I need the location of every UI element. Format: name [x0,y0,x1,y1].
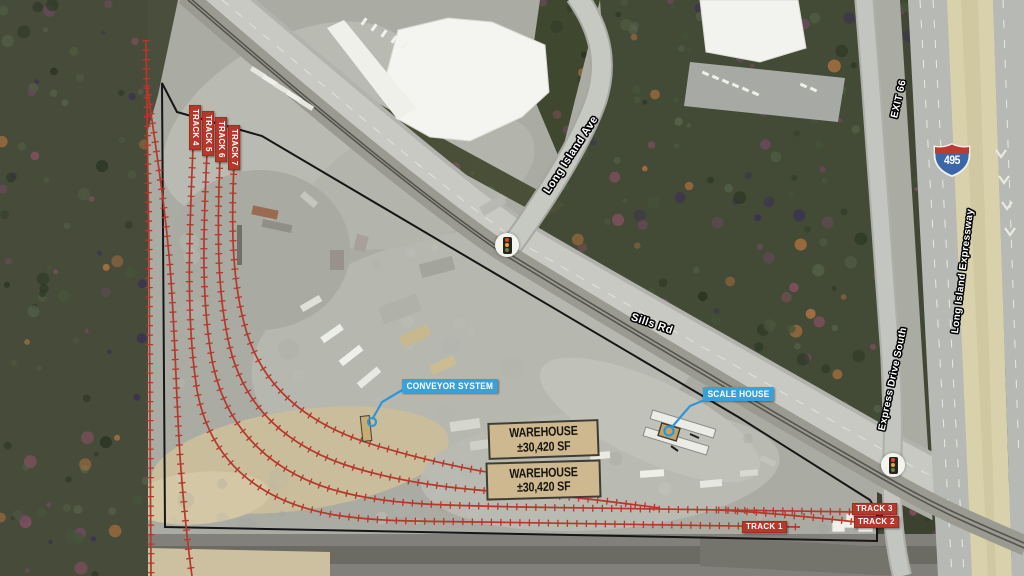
traffic-signal-icon [495,233,519,257]
track-2-label: TRACK 2 [854,516,899,528]
warehouse-2-area: ±30,420 SF [517,479,571,495]
interstate-number: 495 [935,155,969,167]
track-3-label: TRACK 3 [852,503,897,515]
scale-house-callout: SCALE HOUSE [703,387,774,401]
track-5-label: TRACK 5 [202,111,214,156]
warehouse-footprint-1: WAREHOUSE ±30,420 SF [487,419,599,460]
track-1-label: TRACK 1 [742,521,787,533]
traffic-signal-icon [881,453,905,477]
warehouse-footprint-2: WAREHOUSE ±30,420 SF [485,459,601,500]
conveyor-system-callout: CONVEYOR SYSTEM [402,379,498,393]
track-4-label: TRACK 4 [189,105,201,150]
warehouse-1-area: ±30,420 SF [517,439,571,455]
aerial-site-plan: TRACK 4 TRACK 5 TRACK 6 TRACK 7 TRACK 1 … [0,0,1024,576]
track-6-label: TRACK 6 [215,117,227,162]
track-7-label: TRACK 7 [228,125,240,170]
interstate-495-shield-icon: 495 [933,143,971,177]
top-right-building [700,0,806,62]
